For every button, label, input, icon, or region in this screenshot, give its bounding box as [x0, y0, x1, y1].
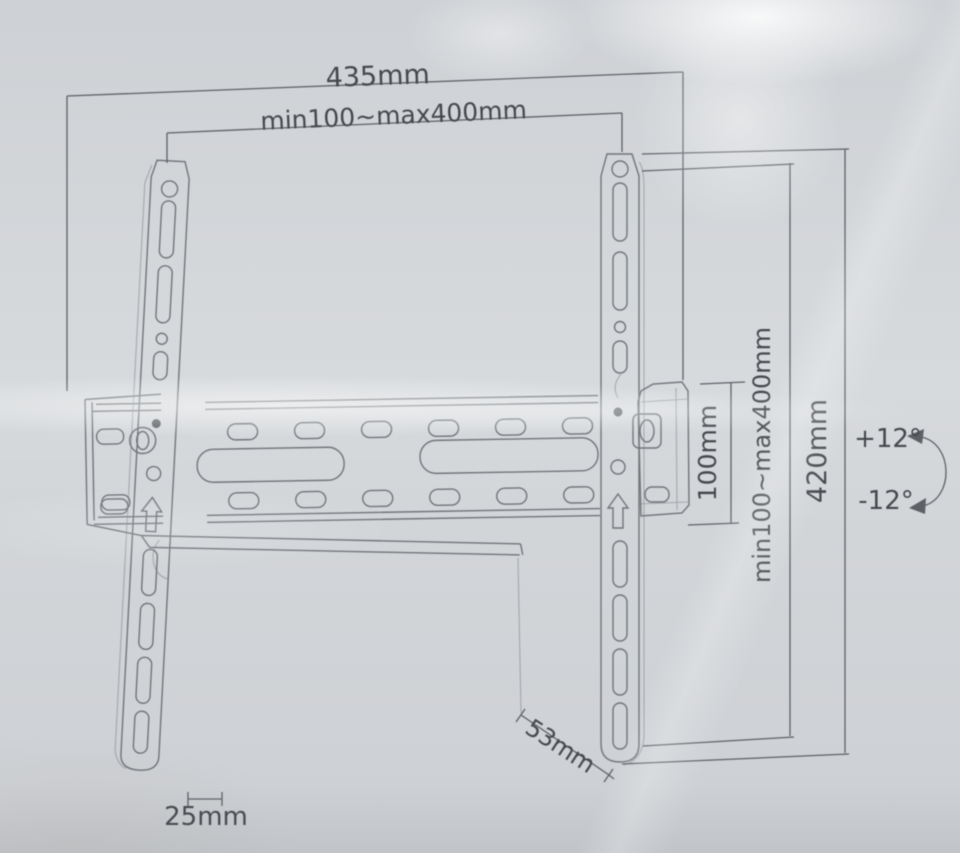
plate-left-end-cap	[85, 394, 163, 536]
dim-depth-label: 53mm	[520, 713, 600, 779]
dim-bracket-height-label: 100mm	[693, 405, 722, 501]
tilt-down-label: -12°	[858, 486, 913, 516]
plate-slot-row-top	[227, 418, 592, 440]
plate-depth-edge	[518, 558, 521, 713]
rail-top-hole	[161, 181, 178, 198]
plate-slot-row-bottom	[102, 487, 594, 512]
plate-long-slot-left	[197, 447, 345, 483]
up-arrow-icon	[608, 494, 628, 528]
dim-vesa-height-label: min100~max400mm	[748, 327, 776, 583]
dim-rail-width-label: 25mm	[164, 802, 248, 832]
packaging-photo: 435mm min100~max400mm 100mm min100~max40…	[0, 0, 960, 853]
tilt-up-label: +12°	[854, 424, 922, 454]
left-vesa-rail	[114, 160, 190, 771]
dim-total-width-label: 435mm	[325, 59, 430, 94]
plate-bottom-flange	[141, 529, 522, 562]
tv-hook-bracket	[633, 382, 689, 516]
screw-icon	[614, 408, 623, 417]
wall-mount-diagram: 435mm min100~max400mm 100mm min100~max40…	[0, 0, 960, 853]
dim-vesa-width-label: min100~max400mm	[260, 95, 528, 136]
wall-plate	[85, 387, 601, 581]
plate-long-slot-right	[420, 438, 599, 474]
screw-icon	[152, 419, 161, 428]
up-arrow-icon	[141, 497, 163, 532]
dim-total-height-label: 420mm	[802, 399, 833, 503]
right-vesa-rail	[601, 154, 644, 765]
rail-top-hole	[612, 161, 628, 177]
plate-latch-hook	[153, 540, 168, 579]
